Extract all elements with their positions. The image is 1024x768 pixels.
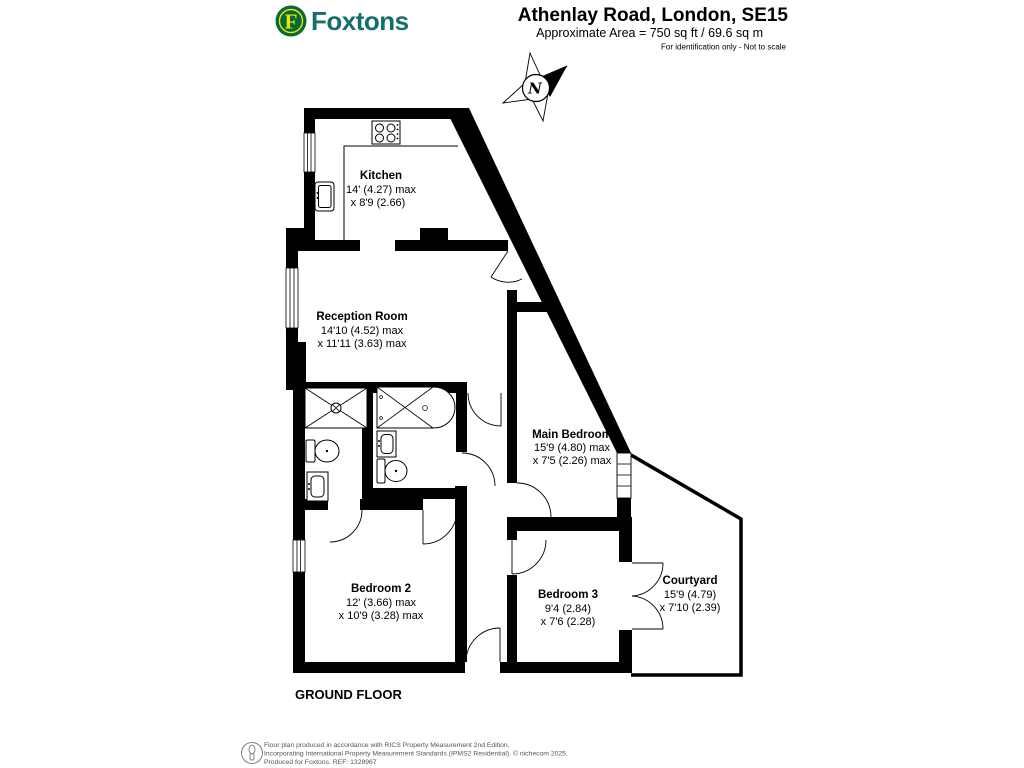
entrance-door	[466, 628, 500, 662]
courtyard-french-doors	[632, 563, 663, 629]
room-label-kitchen: Kitchen 14' (4.27) max x 8'9 (2.66)	[346, 170, 416, 209]
disclaimer-text: For identification only - Not to scale	[661, 43, 786, 52]
toilet-icon	[306, 440, 339, 462]
brand-wordmark: Foxtons	[311, 6, 409, 36]
approximate-area: Approximate Area = 750 sq ft / 69.6 sq m	[536, 26, 763, 40]
footer-line-3: Produced for Foxtons. REF: 1328967	[264, 759, 377, 766]
kitchen-sink-icon	[315, 182, 334, 211]
bedroom2-window	[293, 540, 305, 572]
floorplan-page: F Foxtons Athenlay Road, London, SE15 Ap…	[0, 0, 1024, 768]
kitchen-window	[304, 133, 315, 172]
bathroom2-fixtures	[377, 387, 455, 483]
main-bedroom-window	[617, 453, 631, 498]
compass-north-label: N	[527, 80, 543, 98]
room-dim2: x 11'11 (3.63) max	[317, 338, 407, 350]
basin-icon	[377, 431, 396, 457]
hallway-top-door	[468, 393, 501, 426]
toilet-icon	[377, 459, 407, 483]
page-title: Athenlay Road, London, SE15	[518, 5, 789, 26]
kitchen-door	[491, 251, 522, 282]
room-name: Bedroom 3	[538, 589, 598, 601]
bedroom3-door	[512, 540, 546, 574]
nichecom-logo-icon	[242, 743, 263, 764]
foxtons-logo: F Foxtons	[276, 6, 409, 37]
floorplan-canvas: F Foxtons Athenlay Road, London, SE15 Ap…	[0, 0, 1024, 768]
bathroom1-fixtures	[305, 388, 367, 501]
foxtons-logo-f-icon: F	[285, 10, 298, 34]
bedroom2-door	[423, 510, 457, 544]
bathtub-icon	[377, 387, 455, 428]
bathroom1-door	[330, 510, 362, 542]
room-name: Main Bedroom	[532, 429, 612, 441]
room-label-main-bedroom: Main Bedroom 15'9 (4.80) max x 7'5 (2.26…	[532, 429, 612, 467]
room-dim1: 14' (4.27) max	[346, 184, 416, 196]
floor-label: GROUND FLOOR	[295, 687, 402, 702]
footer: Floor plan produced in accordance with R…	[242, 742, 568, 766]
room-dim2: x 7'5 (2.26) max	[533, 455, 612, 467]
room-label-reception: Reception Room 14'10 (4.52) max x 11'11 …	[316, 311, 407, 350]
shower-icon	[305, 388, 367, 428]
header-titles: Athenlay Road, London, SE15 Approximate …	[518, 5, 789, 52]
room-dim1: 15'9 (4.79)	[664, 589, 716, 601]
room-name: Courtyard	[663, 575, 718, 587]
hob-icon	[372, 121, 400, 144]
room-dim2: x 8'9 (2.66)	[351, 197, 406, 209]
room-label-bedroom3: Bedroom 3 9'4 (2.84) x 7'6 (2.28)	[538, 589, 598, 628]
room-label-courtyard: Courtyard 15'9 (4.79) x 7'10 (2.39)	[660, 575, 721, 614]
main-bedroom-door	[517, 483, 551, 517]
footer-line-2: Incorporating International Property Mea…	[264, 750, 568, 758]
room-dim2: x 7'6 (2.28)	[541, 616, 596, 628]
room-dim1: 12' (3.66) max	[346, 597, 416, 609]
reception-window	[286, 268, 298, 328]
room-name: Bedroom 2	[351, 583, 411, 595]
room-dim1: 9'4 (2.84)	[545, 603, 591, 615]
bathroom2-door	[462, 453, 495, 486]
room-dim2: x 10'9 (3.28) max	[339, 610, 424, 622]
room-label-bedroom2: Bedroom 2 12' (3.66) max x 10'9 (3.28) m…	[339, 583, 424, 622]
basin-icon	[307, 472, 328, 501]
room-name: Kitchen	[360, 170, 402, 182]
room-dim1: 14'10 (4.52) max	[321, 325, 404, 337]
courtyard-boundary	[631, 455, 741, 675]
footer-line-1: Floor plan produced in accordance with R…	[264, 742, 510, 749]
room-dim1: 15'9 (4.80) max	[534, 442, 611, 454]
room-name: Reception Room	[316, 311, 407, 323]
compass-rose-icon: N	[503, 53, 567, 121]
room-dim2: x 7'10 (2.39)	[660, 602, 721, 614]
